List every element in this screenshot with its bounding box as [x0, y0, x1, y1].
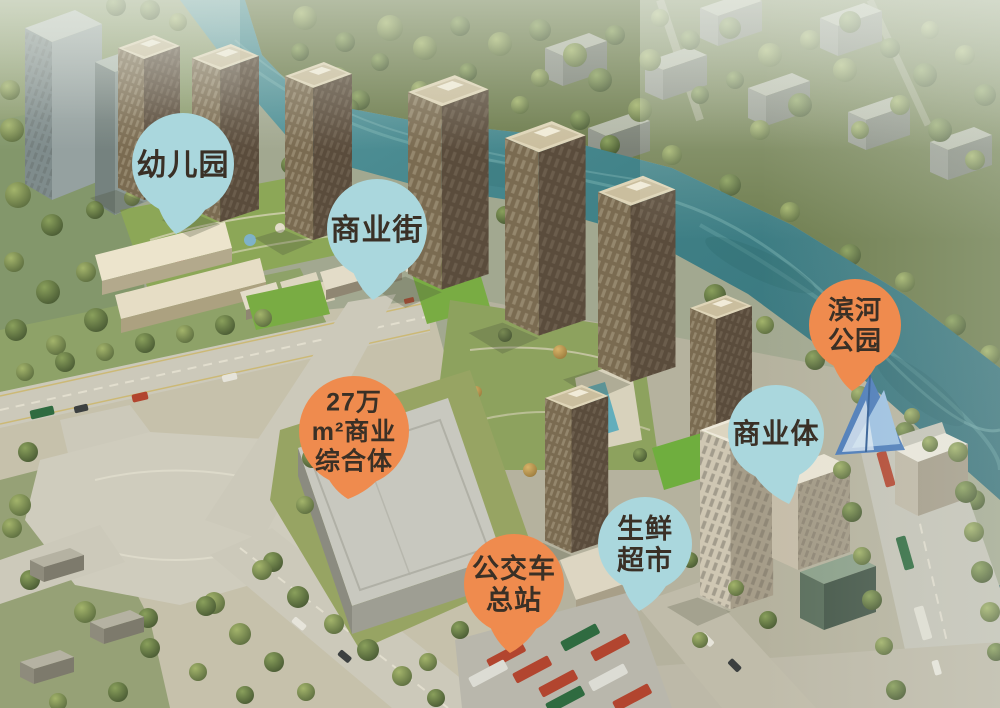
map-pin-commercial-body: 商业体 — [728, 385, 824, 504]
map-pin-riverside-park: 滨河公园 — [809, 279, 901, 391]
map-pin-commercial-complex: 27万m²商业综合体 — [299, 376, 409, 499]
pin-label: 生鲜超市 — [617, 514, 673, 576]
map-pin-commercial-street: 商业街 — [327, 179, 427, 300]
map-pin-fresh-supermarket: 生鲜超市 — [598, 497, 692, 611]
map-pins-layer: 幼儿园商业街27万m²商业综合体公交车总站生鲜超市商业体滨河公园 — [0, 0, 1000, 708]
pin-balloon — [464, 534, 564, 634]
pin-label: 幼儿园 — [137, 149, 230, 182]
pin-label: 滨河公园 — [828, 295, 882, 356]
map-pin-bus-terminal: 公交车总站 — [464, 534, 564, 653]
pin-label: 商业街 — [331, 214, 424, 247]
aerial-map: 幼儿园商业街27万m²商业综合体公交车总站生鲜超市商业体滨河公园 — [0, 0, 1000, 708]
pin-balloon — [598, 497, 692, 591]
map-pin-kindergarten: 幼儿园 — [132, 113, 234, 234]
pin-label: 商业体 — [732, 418, 819, 449]
